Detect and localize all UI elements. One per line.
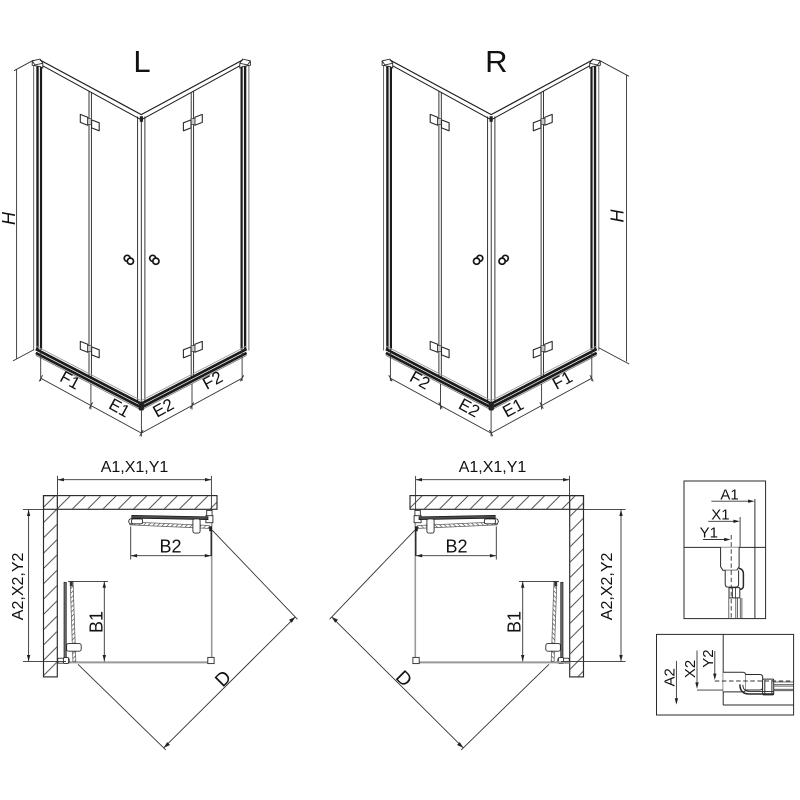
svg-text:R: R <box>485 44 507 79</box>
svg-text:A1,X1,Y1: A1,X1,Y1 <box>459 459 527 476</box>
svg-text:A2,X2,Y2: A2,X2,Y2 <box>599 553 616 621</box>
svg-text:X2: X2 <box>682 660 699 678</box>
svg-text:H: H <box>0 211 19 225</box>
svg-text:L: L <box>133 44 150 79</box>
svg-text:A2: A2 <box>662 668 679 686</box>
svg-text:B2: B2 <box>445 537 467 557</box>
svg-text:B1: B1 <box>505 611 525 633</box>
svg-text:Y1: Y1 <box>700 525 718 542</box>
svg-text:A2,X2,Y2: A2,X2,Y2 <box>10 553 27 621</box>
svg-text:A1: A1 <box>720 486 738 503</box>
svg-text:B2: B2 <box>159 537 181 557</box>
svg-text:X1: X1 <box>711 506 729 523</box>
svg-text:A1,X1,Y1: A1,X1,Y1 <box>101 459 169 476</box>
svg-text:Y2: Y2 <box>700 649 717 667</box>
svg-text:H: H <box>607 209 627 223</box>
svg-text:B1: B1 <box>86 611 106 633</box>
